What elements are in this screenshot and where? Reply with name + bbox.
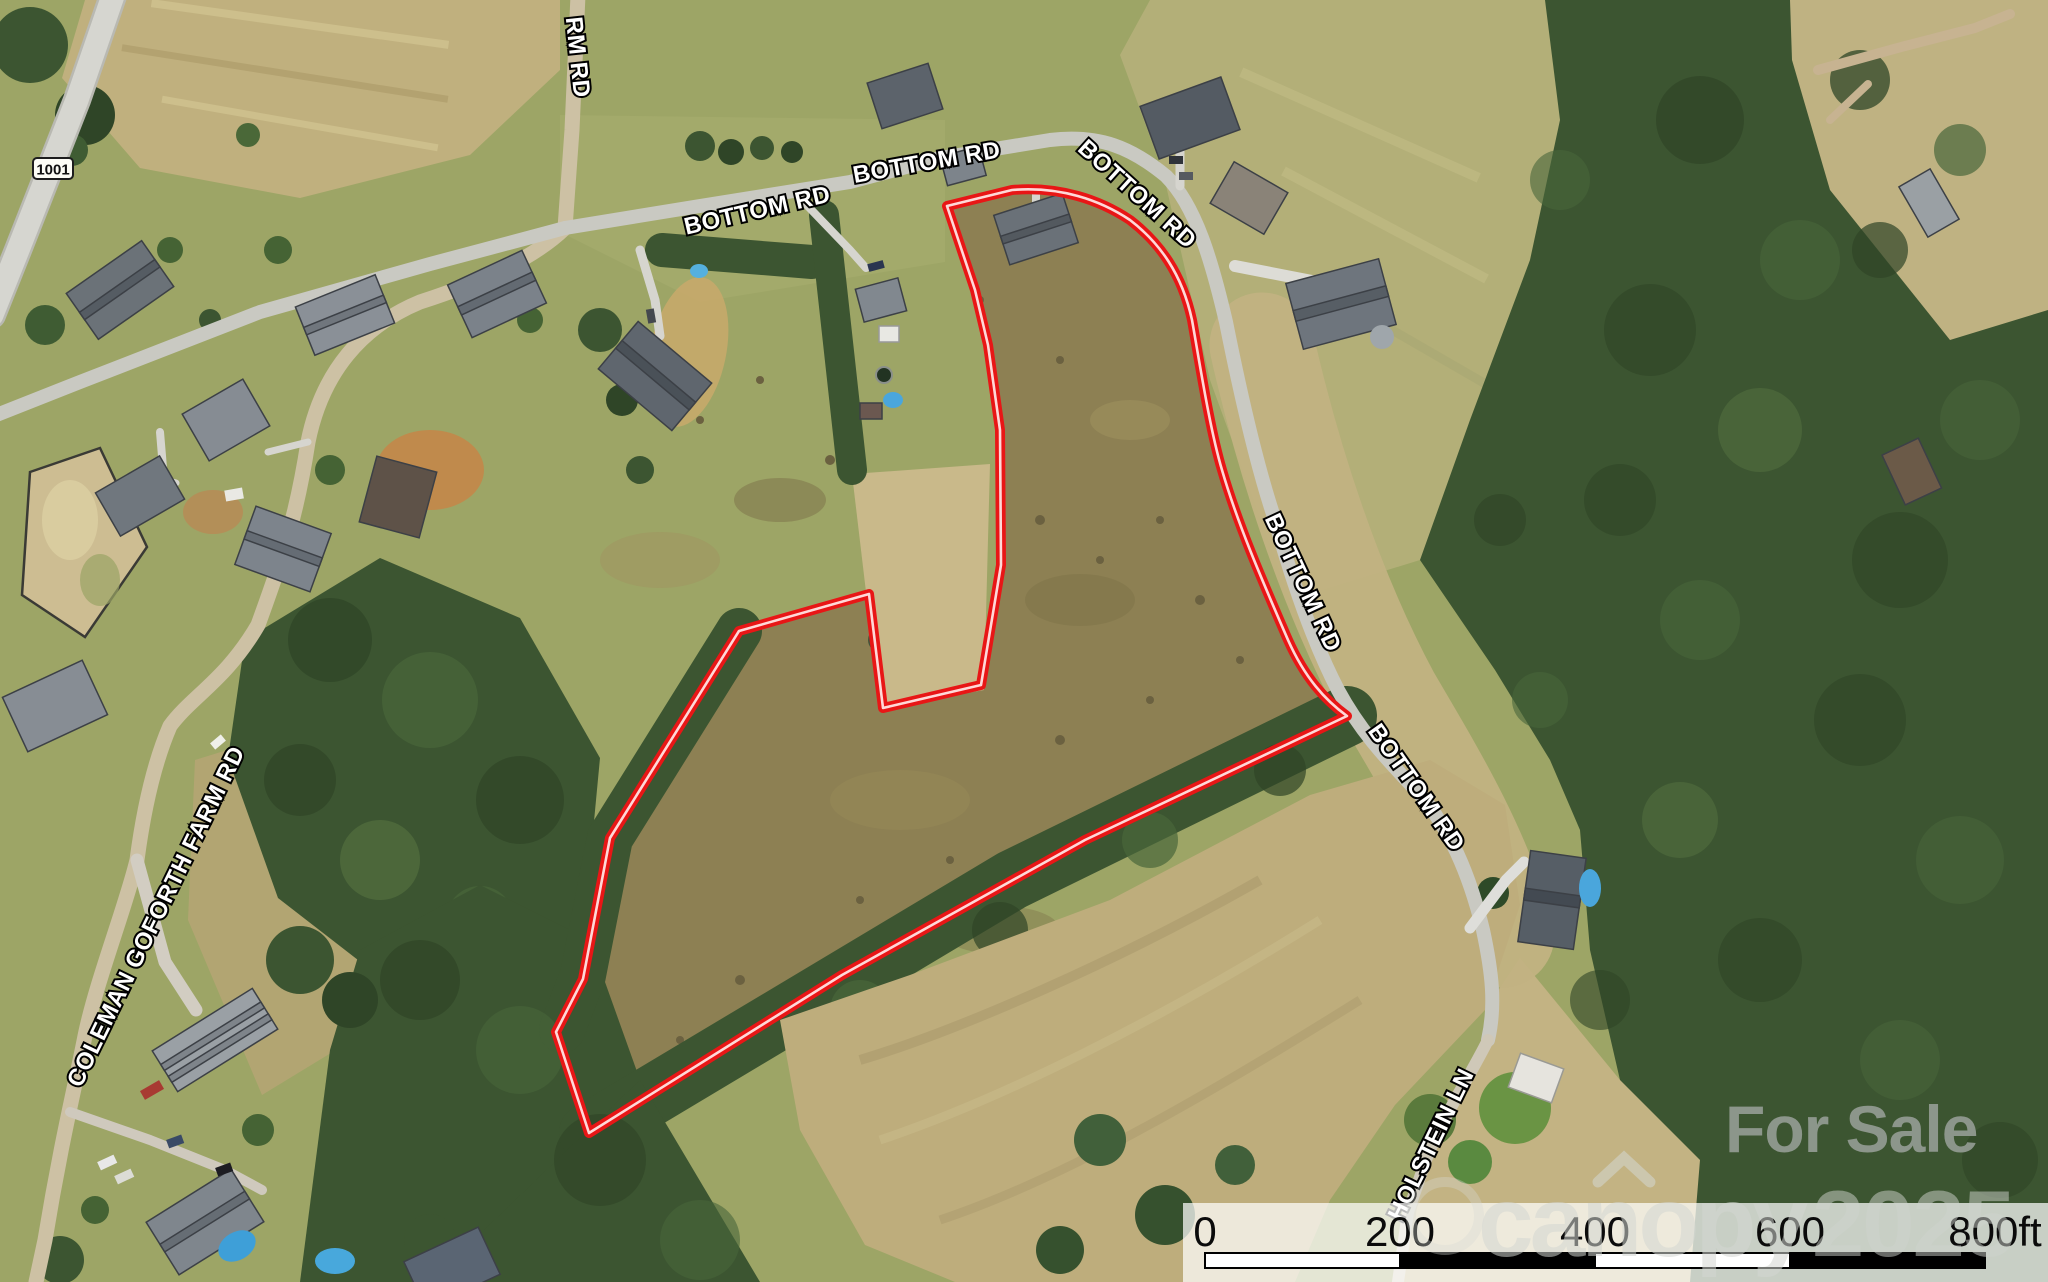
aerial-parcel-map: RM RD BOTTOM RD BOTTOM RD BOTTOM RD BOTT…	[0, 0, 2048, 1282]
watermark-for-sale: For Sale	[1725, 1092, 1977, 1166]
route-shield-number: 1001	[36, 162, 69, 179]
route-shield-1001: 1001	[33, 158, 73, 179]
watermark-year: 2025	[1812, 1171, 2013, 1276]
scale-tick-0: 0	[1193, 1208, 1216, 1255]
map-canvas: RM RD BOTTOM RD BOTTOM RD BOTTOM RD BOTT…	[0, 0, 2048, 1282]
